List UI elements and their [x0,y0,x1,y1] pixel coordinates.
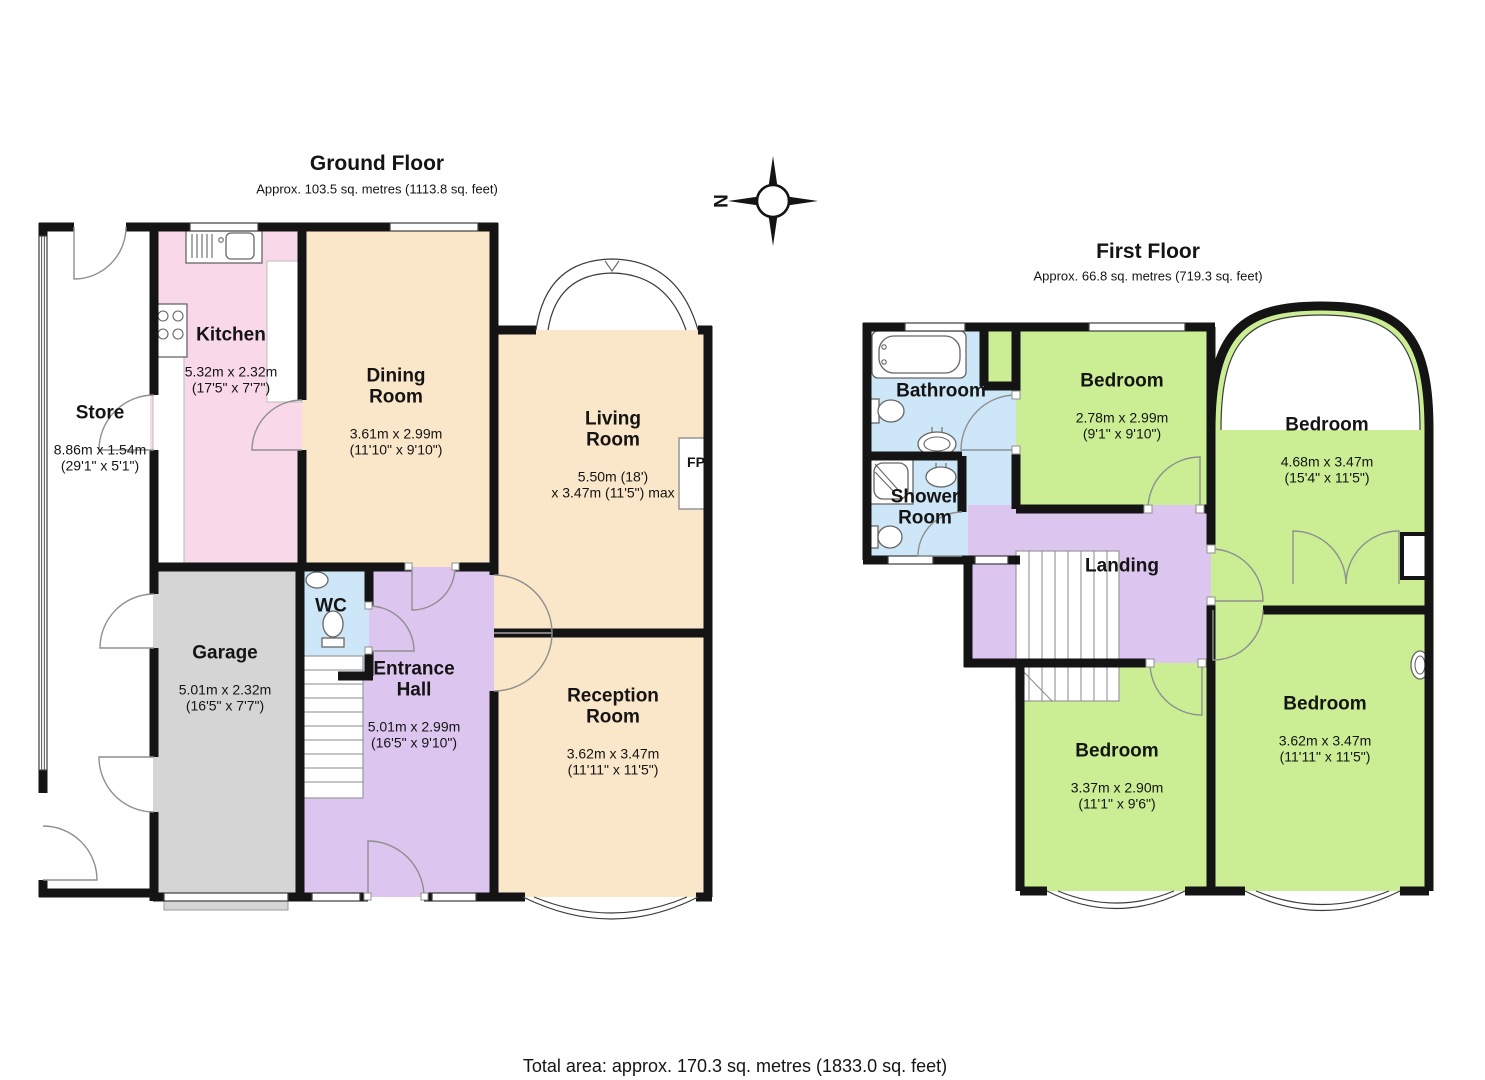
first-floor-plan [863,306,1429,911]
floorplan-page: Ground Floor Approx. 103.5 sq. metres (1… [0,0,1485,1080]
compass-icon [728,156,818,246]
shower-toilet-icon [869,526,902,548]
ground-floor-plan [39,223,712,919]
wc-toilet-icon [322,611,344,647]
wc-sink-icon [306,572,328,588]
bathtub-icon [872,331,966,378]
shower-tray-icon [869,458,913,504]
kitchen-sink-icon [186,229,262,263]
hob-icon [154,304,187,357]
bathroom-toilet-icon [869,399,904,423]
room-fills-ground [43,227,708,919]
floorplan-drawing [0,0,1485,1080]
stairs-first [1016,551,1119,701]
